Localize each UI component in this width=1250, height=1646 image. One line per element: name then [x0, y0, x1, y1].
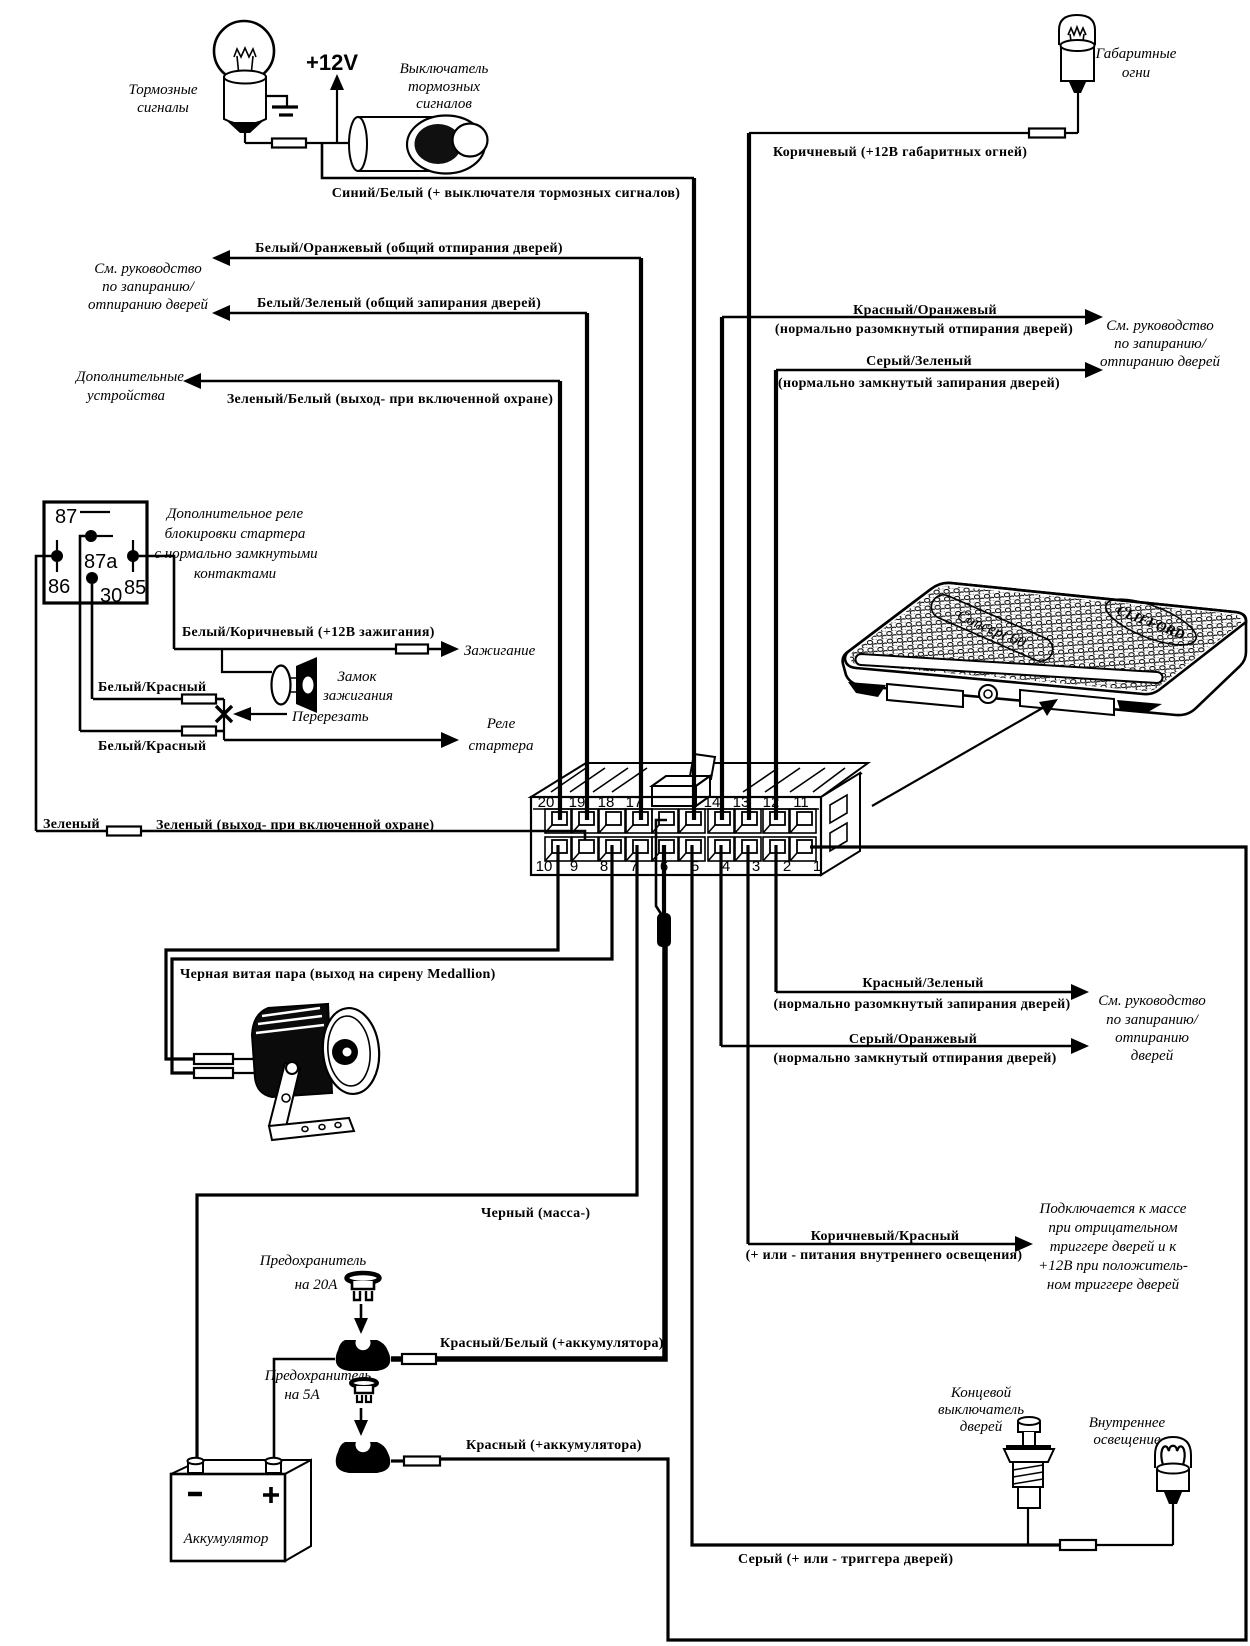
svg-text:сигналы: сигналы: [137, 100, 189, 116]
svg-text:ном триггере дверей: ном триггере дверей: [1047, 1277, 1180, 1293]
svg-text:13: 13: [733, 794, 750, 811]
svg-text:См. руководство: См. руководство: [1106, 318, 1214, 334]
svg-text:Габаритные: Габаритные: [1095, 46, 1177, 62]
svg-text:по запиранию/: по запиранию/: [1106, 1012, 1200, 1028]
svg-text:освещение: освещение: [1093, 1432, 1161, 1448]
svg-text:19: 19: [569, 794, 586, 811]
svg-text:стартера: стартера: [469, 738, 534, 754]
svg-text:1: 1: [813, 858, 821, 875]
svg-text:при отрицательном: при отрицательном: [1048, 1220, 1178, 1236]
svg-text:9: 9: [570, 858, 578, 875]
svg-text:20: 20: [538, 794, 555, 811]
svg-text:Замок: Замок: [337, 669, 377, 685]
svg-text:11: 11: [793, 794, 809, 811]
svg-text:блокировки стартера: блокировки стартера: [165, 526, 306, 542]
svg-text:(нормально замкнутый запирания: (нормально замкнутый запирания дверей): [778, 376, 1060, 391]
svg-text:Аккумулятор: Аккумулятор: [183, 1531, 269, 1547]
svg-text:тормозных: тормозных: [408, 79, 480, 95]
svg-text:на 5А: на 5А: [284, 1387, 320, 1403]
svg-text:(нормально замкнутый отпирания: (нормально замкнутый отпирания дверей): [773, 1051, 1056, 1066]
svg-text:Реле: Реле: [486, 716, 516, 732]
svg-text:Тормозные: Тормозные: [128, 82, 197, 98]
svg-text:2: 2: [783, 858, 791, 875]
svg-text:86: 86: [48, 576, 70, 598]
svg-text:См. руководство: См. руководство: [1098, 993, 1206, 1009]
svg-text:Концевой: Концевой: [950, 1385, 1012, 1401]
svg-text:Дополнительное реле: Дополнительное реле: [165, 506, 304, 522]
svg-text:Серый/Зеленый: Серый/Зеленый: [866, 354, 972, 369]
svg-text:Серый/Оранжевый: Серый/Оранжевый: [849, 1032, 977, 1047]
svg-text:по запиранию/: по запиранию/: [102, 279, 196, 295]
svg-text:Коричневый/Красный: Коричневый/Красный: [811, 1229, 960, 1244]
svg-text:отпиранию: отпиранию: [1115, 1030, 1189, 1046]
svg-text:отпиранию дверей: отпиранию дверей: [1100, 354, 1221, 370]
svg-text:8: 8: [600, 858, 608, 875]
svg-text:Коричневый (+12В габаритных ог: Коричневый (+12В габаритных огней): [773, 145, 1027, 160]
svg-text:сигналов: сигналов: [416, 96, 472, 112]
svg-text:с нормально замкнутыми: с нормально замкнутыми: [154, 546, 317, 562]
svg-text:Белый/Оранжевый (общий отпиран: Белый/Оранжевый (общий отпирания дверей): [255, 241, 563, 256]
svg-text:Красный/Зеленый: Красный/Зеленый: [862, 976, 983, 991]
svg-text:(нормально разомкнутый запиран: (нормально разомкнутый запирания дверей): [774, 997, 1071, 1012]
svg-text:дверей: дверей: [1131, 1048, 1174, 1064]
svg-text:на 20А: на 20А: [295, 1277, 339, 1293]
svg-text:Зеленый/Белый (выход- при вклю: Зеленый/Белый (выход- при включенной охр…: [227, 392, 553, 407]
svg-text:Синий/Белый (+ выключателя тор: Синий/Белый (+ выключателя тормозных сиг…: [332, 186, 680, 201]
svg-text:4: 4: [722, 858, 730, 875]
svg-text:выключатель: выключатель: [938, 1402, 1024, 1418]
svg-text:87: 87: [55, 506, 77, 528]
svg-text:Внутреннее: Внутреннее: [1089, 1415, 1166, 1431]
svg-text:См. руководство: См. руководство: [94, 261, 202, 277]
svg-text:Красный/Белый (+аккумулятора): Красный/Белый (+аккумулятора): [440, 1336, 664, 1351]
svg-text:Красный/Оранжевый: Красный/Оранжевый: [853, 303, 997, 318]
svg-text:Красный (+аккумулятора): Красный (+аккумулятора): [466, 1438, 642, 1453]
svg-text:триггере дверей и к: триггере дверей и к: [1050, 1239, 1178, 1255]
svg-text:Предохранитель: Предохранитель: [259, 1253, 367, 1269]
svg-text:+12В при положитель-: +12В при положитель-: [1038, 1258, 1188, 1274]
svg-text:устройства: устройства: [85, 388, 165, 404]
svg-text:87a: 87a: [84, 551, 118, 573]
svg-text:по запиранию/: по запиранию/: [1114, 336, 1208, 352]
svg-text:Белый/Коричневый (+12В зажиган: Белый/Коричневый (+12В зажигания): [182, 625, 435, 640]
svg-text:Перерезать: Перерезать: [291, 709, 369, 725]
svg-text:30: 30: [100, 585, 122, 607]
svg-text:дверей: дверей: [960, 1419, 1003, 1435]
svg-text:Черная витая пара (выход на си: Черная витая пара (выход на сирену Medal…: [180, 967, 496, 982]
svg-text:(+ или - питания внутреннего о: (+ или - питания внутреннего освещения): [746, 1248, 1023, 1263]
svg-text:Зеленый (выход- при включенной: Зеленый (выход- при включенной охране): [156, 818, 434, 833]
svg-text:Белый/Красный: Белый/Красный: [98, 680, 206, 695]
svg-text:Белый/Красный: Белый/Красный: [98, 739, 206, 754]
svg-text:10: 10: [536, 858, 553, 875]
svg-text:контактами: контактами: [194, 566, 276, 582]
svg-text:Черный (масса-): Черный (масса-): [481, 1206, 590, 1221]
svg-text:Зажигание: Зажигание: [464, 643, 536, 659]
svg-text:Белый/Зеленый (общий запирания: Белый/Зеленый (общий запирания дверей): [257, 296, 541, 311]
svg-text:Зеленый: Зеленый: [43, 817, 100, 832]
svg-text:85: 85: [124, 577, 146, 599]
svg-text:зажигания: зажигания: [322, 688, 393, 704]
svg-text:14: 14: [704, 794, 721, 811]
svg-text:Выключатель: Выключатель: [400, 61, 489, 77]
svg-text:+12V: +12V: [306, 50, 358, 75]
svg-text:3: 3: [752, 858, 760, 875]
svg-text:Подключается к массе: Подключается к массе: [1039, 1201, 1187, 1217]
svg-text:(нормально разомкнутый отпиран: (нормально разомкнутый отпирания дверей): [775, 322, 1073, 337]
svg-text:Серый (+ или - триггера дверей: Серый (+ или - триггера дверей): [738, 1552, 953, 1567]
svg-text:18: 18: [598, 794, 615, 811]
svg-text:Дополнительные: Дополнительные: [74, 369, 184, 385]
svg-text:огни: огни: [1122, 65, 1150, 81]
svg-text:отпиранию дверей: отпиранию дверей: [88, 297, 209, 313]
